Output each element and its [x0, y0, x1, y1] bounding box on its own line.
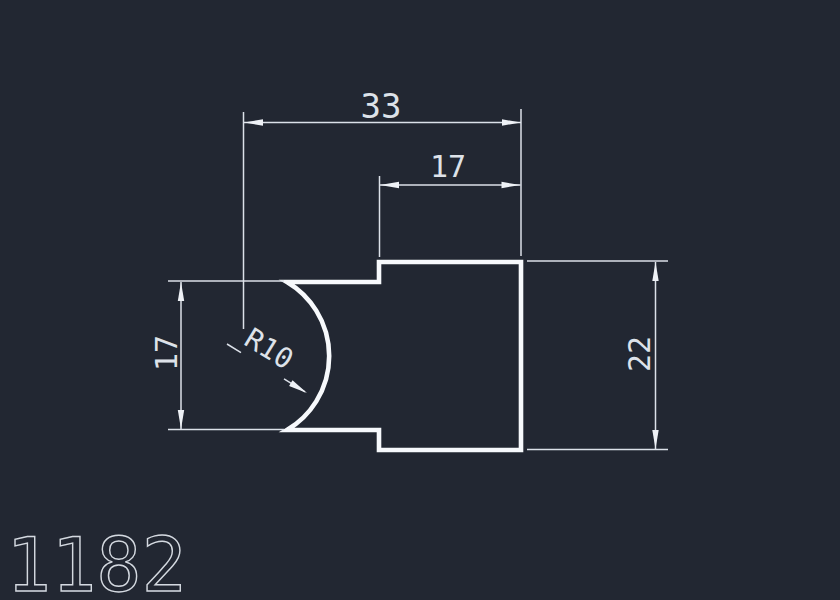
- arrowhead-left: [380, 182, 399, 188]
- dim-left-height-label: 17: [149, 335, 184, 371]
- dim-groove-radius-label: R10: [239, 322, 299, 377]
- dim-right-height-label: 22: [622, 336, 657, 372]
- dim-upper-width-label: 17: [430, 149, 466, 184]
- arrowhead-right: [502, 182, 521, 188]
- drawing-number-label: 1182: [6, 528, 187, 600]
- arrowhead-up: [178, 282, 184, 301]
- arrowhead-down: [652, 430, 658, 449]
- dim-total-width: 33: [244, 86, 522, 329]
- arrowhead-right: [502, 119, 521, 125]
- cad-profile-drawing: 33 17 17 22: [0, 0, 840, 600]
- dim-groove-radius: R10: [227, 322, 307, 393]
- arrowhead-up: [652, 262, 658, 281]
- dim-total-width-label: 33: [361, 86, 402, 126]
- arrowhead-left: [244, 119, 263, 125]
- dim-upper-width: 17: [380, 149, 521, 257]
- cad-drawing-canvas: 33 17 17 22: [0, 0, 840, 600]
- dim-right-height: 22: [527, 261, 668, 450]
- arrowhead-down: [178, 410, 184, 429]
- part-outline: [287, 262, 521, 450]
- arrowhead-leader: [289, 380, 307, 393]
